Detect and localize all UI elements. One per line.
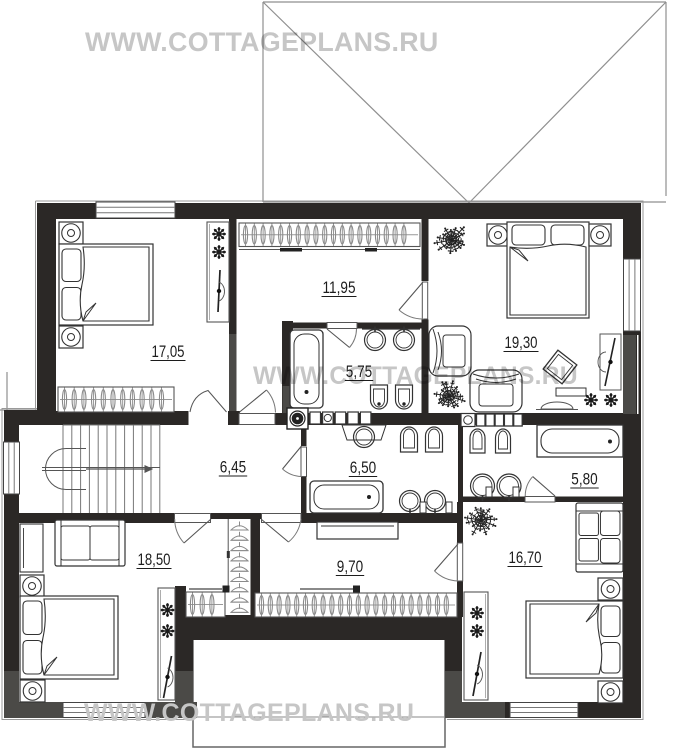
svg-text:19,30: 19,30 (505, 333, 538, 352)
svg-text:16,70: 16,70 (509, 548, 542, 567)
svg-text:WWW.COTTAGEPLANS.RU: WWW.COTTAGEPLANS.RU (85, 27, 439, 57)
svg-text:9,70: 9,70 (337, 557, 363, 576)
svg-text:6,50: 6,50 (350, 458, 376, 477)
svg-text:18,50: 18,50 (138, 550, 171, 569)
svg-text:11,95: 11,95 (323, 278, 356, 297)
svg-text:WWW.COTTAGEPLANS.RU: WWW.COTTAGEPLANS.RU (253, 363, 578, 390)
svg-text:WWW.COTTAGEPLANS.RU: WWW.COTTAGEPLANS.RU (84, 699, 414, 727)
svg-text:17,05: 17,05 (152, 342, 185, 361)
svg-text:5,80: 5,80 (571, 470, 597, 489)
svg-text:6,45: 6,45 (220, 458, 246, 477)
